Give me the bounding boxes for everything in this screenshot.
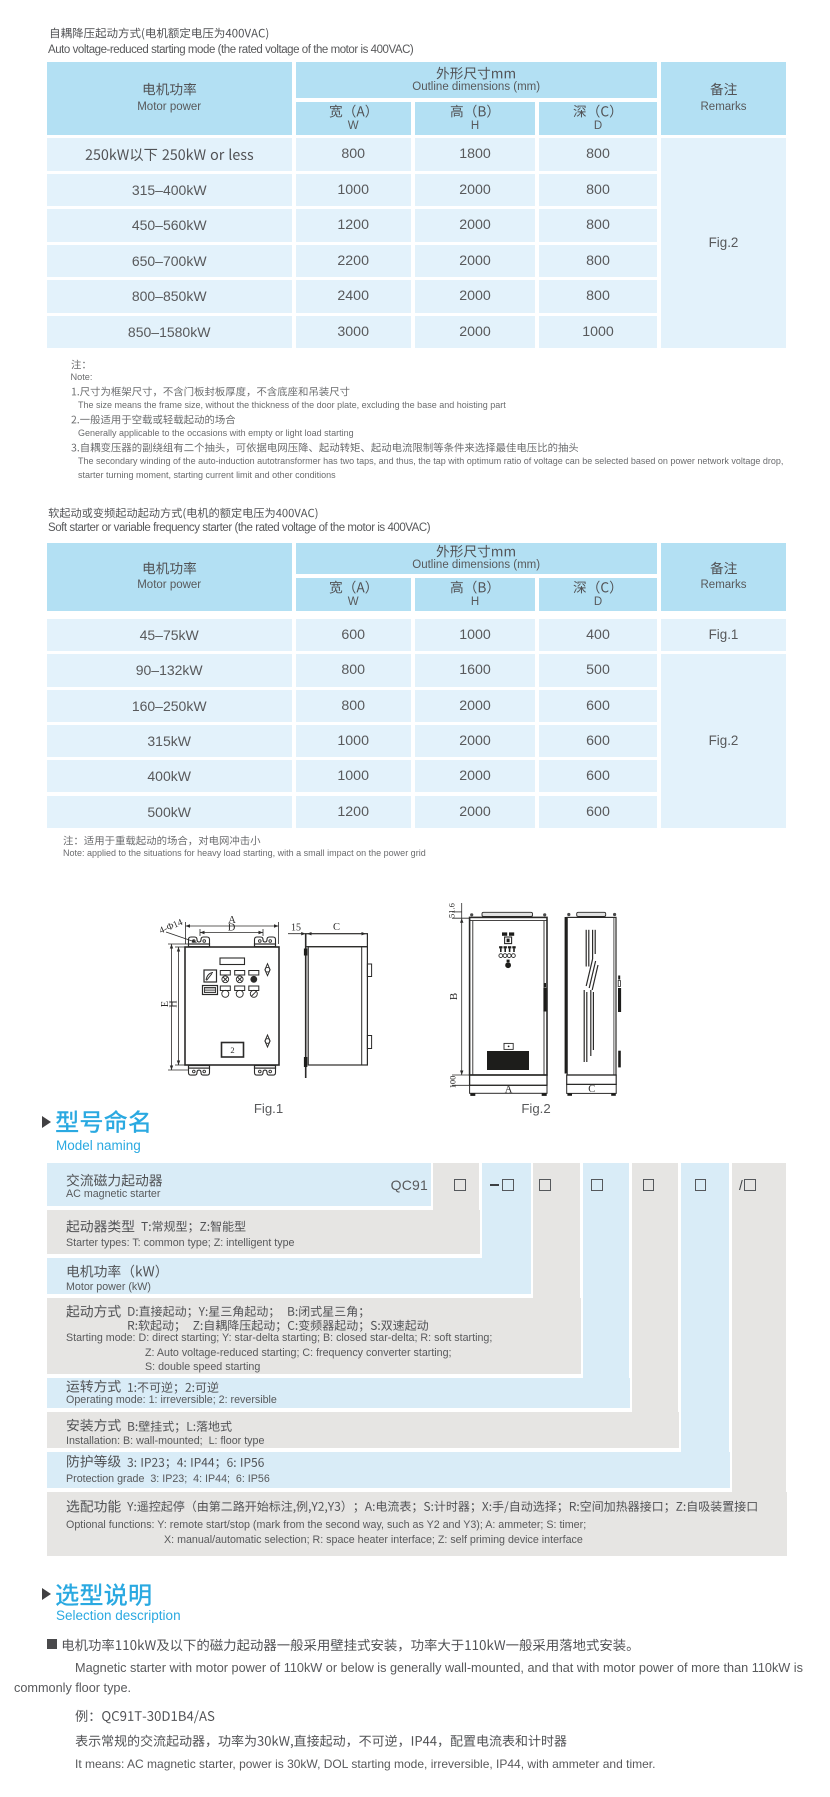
svg-text:2: 2 [230,1045,234,1055]
svg-text:A: A [505,1084,513,1095]
svg-text:D: D [228,923,236,934]
svg-text:B: B [448,993,460,1000]
svg-text:100: 100 [448,1076,458,1089]
svg-text:C: C [588,1084,595,1095]
svg-text:15: 15 [291,923,301,934]
svg-text:C: C [333,922,340,933]
svg-text:51.6: 51.6 [447,903,457,918]
svg-text:H: H [169,1000,180,1007]
